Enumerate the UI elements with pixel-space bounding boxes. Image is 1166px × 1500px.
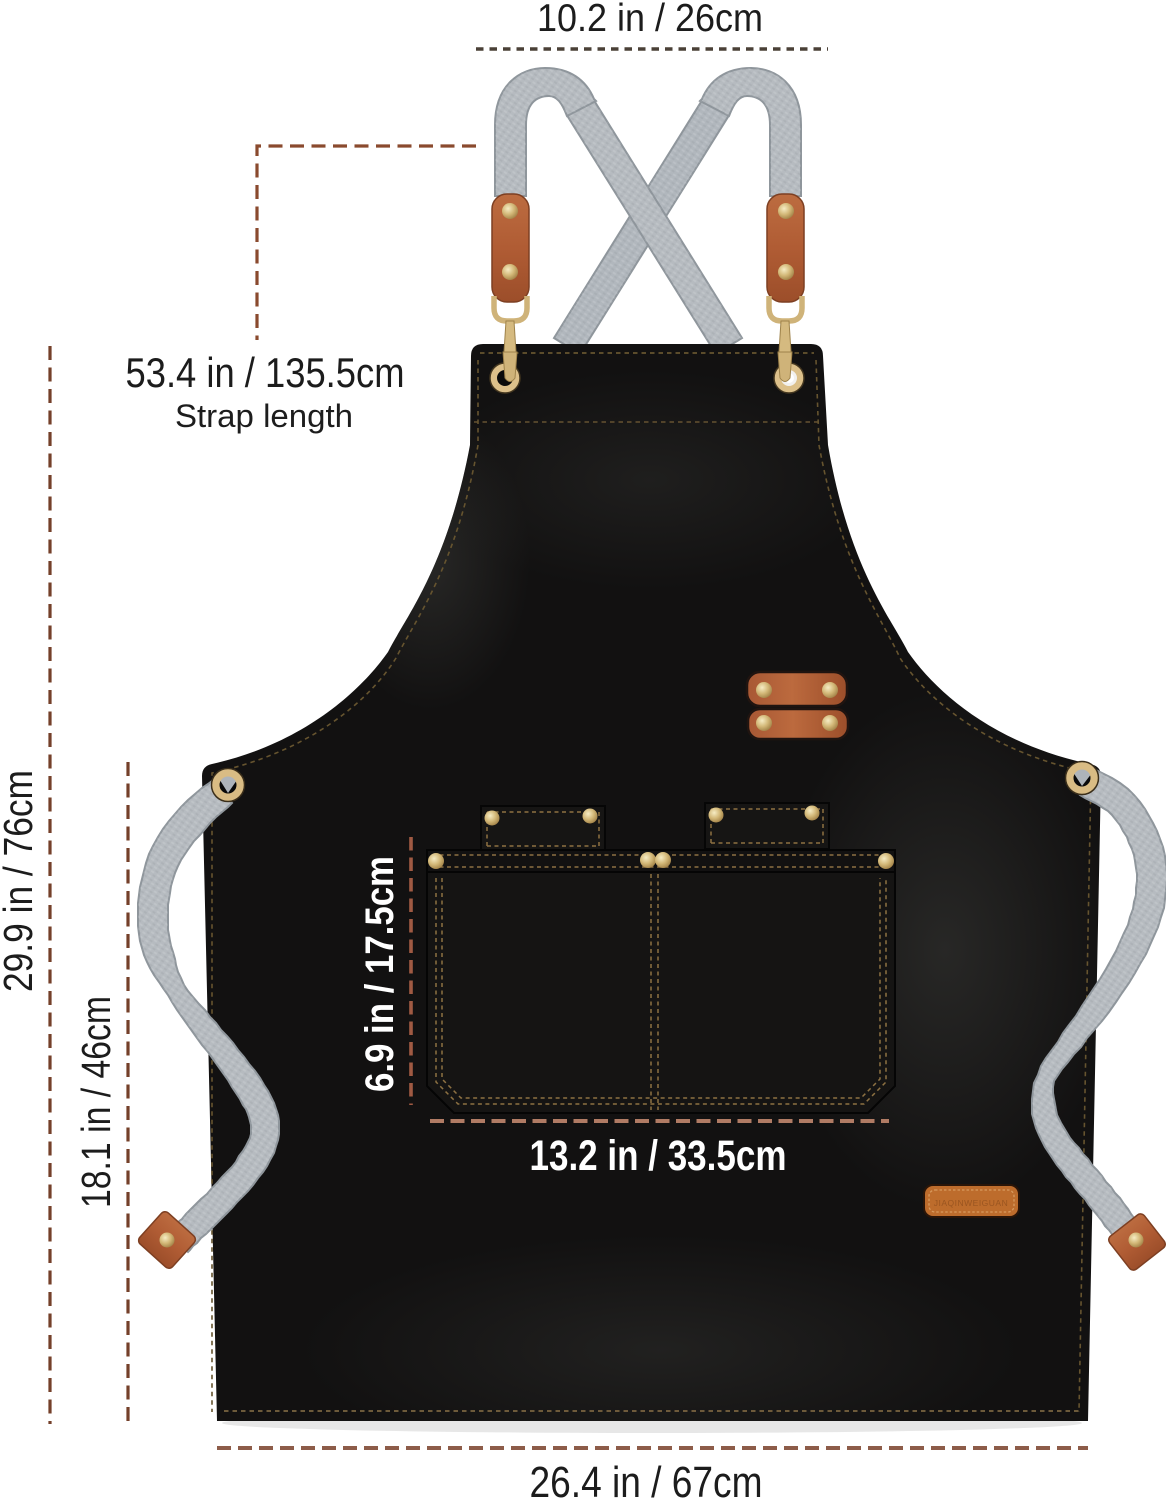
svg-text:29.9 in / 76cm: 29.9 in / 76cm [0, 770, 41, 992]
svg-text:JIAQINWEIGUAN: JIAQINWEIGUAN [934, 1198, 1009, 1208]
svg-text:18.1 in / 46cm: 18.1 in / 46cm [73, 996, 119, 1208]
svg-text:13.2 in / 33.5cm: 13.2 in / 33.5cm [530, 1133, 787, 1180]
svg-text:26.4 in / 67cm: 26.4 in / 67cm [530, 1458, 763, 1500]
svg-text:53.4 in / 135.5cm: 53.4 in / 135.5cm [126, 349, 405, 396]
svg-text:10.2 in / 26cm: 10.2 in / 26cm [537, 0, 763, 40]
svg-text:Strap length: Strap length [175, 398, 353, 434]
svg-text:6.9 in / 17.5cm: 6.9 in / 17.5cm [358, 856, 402, 1092]
